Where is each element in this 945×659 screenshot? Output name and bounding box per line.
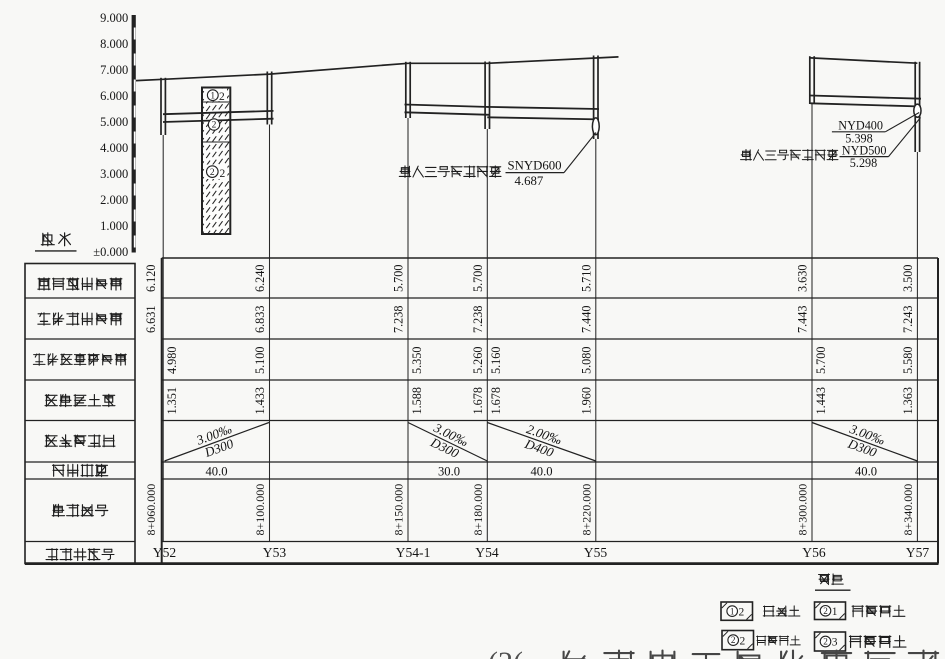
svg-text:2: 2 (823, 606, 828, 616)
svg-text:1.433: 1.433 (253, 387, 267, 414)
svg-text:8+300.000: 8+300.000 (796, 484, 810, 536)
svg-text:5.298: 5.298 (850, 156, 877, 170)
svg-text:Y56: Y56 (802, 545, 826, 560)
svg-text:1.960: 1.960 (579, 387, 593, 414)
svg-text:40.0: 40.0 (855, 464, 877, 478)
svg-text:6.631: 6.631 (144, 306, 158, 333)
svg-text:7.443: 7.443 (796, 306, 810, 333)
svg-text:5.700: 5.700 (814, 347, 828, 374)
svg-text:Y54: Y54 (475, 545, 499, 560)
svg-text:5.350: 5.350 (410, 347, 424, 374)
svg-text:3.000: 3.000 (100, 167, 128, 181)
svg-text:5.700: 5.700 (471, 265, 485, 292)
svg-text:8+060.000: 8+060.000 (144, 484, 158, 536)
svg-text:2: 2 (823, 637, 828, 647)
svg-text:1: 1 (832, 606, 838, 618)
svg-text:2.000: 2.000 (100, 193, 128, 207)
svg-text:4.687: 4.687 (515, 174, 544, 188)
svg-text:6.120: 6.120 (144, 265, 158, 292)
svg-text:5.000: 5.000 (100, 115, 128, 129)
svg-text:Y57: Y57 (906, 545, 930, 560)
svg-text:7.440: 7.440 (579, 306, 593, 333)
svg-text:8.000: 8.000 (100, 37, 128, 51)
svg-text:SNYD600: SNYD600 (508, 158, 562, 172)
svg-text:40.0: 40.0 (205, 464, 227, 478)
svg-text:(2(: (2( (488, 646, 523, 659)
svg-text:2: 2 (219, 91, 225, 103)
svg-text:5.160: 5.160 (489, 347, 503, 374)
svg-text:8+150.000: 8+150.000 (392, 484, 406, 536)
svg-text:6.000: 6.000 (100, 89, 128, 103)
svg-text:1.443: 1.443 (814, 387, 828, 414)
svg-text:7.243: 7.243 (901, 306, 915, 333)
svg-text:5.580: 5.580 (901, 347, 915, 374)
svg-text:NYD400: NYD400 (838, 119, 883, 133)
svg-text:1: 1 (210, 91, 215, 101)
svg-text:3.500: 3.500 (901, 265, 915, 292)
svg-text:5.260: 5.260 (471, 347, 485, 374)
svg-text:1.678: 1.678 (489, 387, 503, 414)
svg-text:30.0: 30.0 (438, 464, 460, 478)
svg-text:4.980: 4.980 (165, 347, 179, 374)
svg-text:2: 2 (739, 606, 745, 618)
svg-text:5.100: 5.100 (253, 347, 267, 374)
svg-text:1.351: 1.351 (165, 387, 179, 414)
svg-text:1.588: 1.588 (410, 387, 424, 414)
svg-text:±0.000: ±0.000 (93, 245, 128, 259)
svg-text:3: 3 (832, 637, 838, 649)
svg-text:8+100.000: 8+100.000 (253, 484, 267, 536)
svg-text:7.000: 7.000 (100, 63, 128, 77)
svg-text:5.700: 5.700 (392, 265, 406, 292)
svg-text:3.630: 3.630 (796, 265, 810, 292)
svg-text:5.080: 5.080 (579, 347, 593, 374)
svg-text:2: 2 (731, 635, 736, 645)
svg-text:2: 2 (220, 168, 226, 180)
svg-text:9.000: 9.000 (100, 11, 128, 25)
svg-text:2: 2 (210, 168, 215, 178)
svg-text:7.238: 7.238 (392, 306, 406, 333)
svg-text:Y55: Y55 (584, 545, 608, 560)
svg-text:1.363: 1.363 (901, 387, 915, 414)
svg-text:Y53: Y53 (263, 545, 287, 560)
svg-text:1.000: 1.000 (100, 219, 128, 233)
svg-text:1.678: 1.678 (471, 387, 485, 414)
svg-text:8+180.000: 8+180.000 (471, 484, 485, 536)
svg-text:6.833: 6.833 (253, 306, 267, 333)
svg-text:2: 2 (740, 635, 746, 647)
svg-text:Y54-1: Y54-1 (396, 545, 431, 560)
svg-text:6.240: 6.240 (253, 265, 267, 292)
svg-text:8+220.000: 8+220.000 (579, 484, 593, 536)
svg-text:2: 2 (212, 121, 217, 131)
svg-text:5.710: 5.710 (579, 265, 593, 292)
svg-text:4.000: 4.000 (100, 141, 128, 155)
svg-text:1: 1 (730, 606, 735, 616)
svg-text:8+340.000: 8+340.000 (901, 484, 915, 536)
svg-text:Y52: Y52 (153, 545, 177, 560)
svg-text:7.238: 7.238 (471, 306, 485, 333)
svg-text:40.0: 40.0 (530, 464, 552, 478)
